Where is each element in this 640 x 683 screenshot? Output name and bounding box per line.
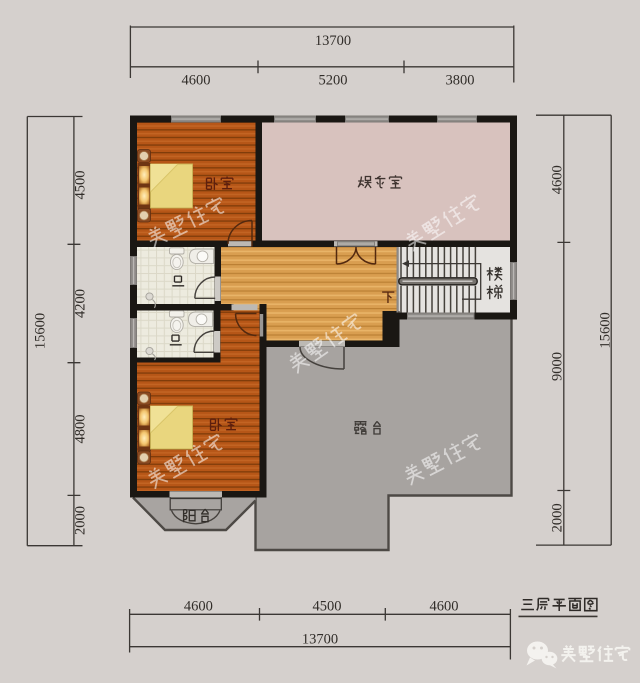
svg-text:4600: 4600 — [182, 73, 211, 89]
svg-text:4800: 4800 — [73, 415, 89, 444]
svg-text:2000: 2000 — [550, 503, 566, 532]
svg-text:4600: 4600 — [430, 599, 459, 615]
svg-text:4200: 4200 — [73, 289, 89, 318]
svg-text:13700: 13700 — [315, 33, 351, 49]
svg-text:4600: 4600 — [184, 599, 213, 615]
svg-text:15600: 15600 — [598, 312, 614, 348]
svg-text:5200: 5200 — [319, 73, 348, 89]
svg-text:4600: 4600 — [550, 165, 566, 194]
svg-text:13700: 13700 — [302, 632, 338, 648]
svg-text:9000: 9000 — [550, 352, 566, 381]
svg-text:15600: 15600 — [33, 313, 49, 349]
svg-text:4500: 4500 — [73, 171, 89, 200]
svg-text:4500: 4500 — [313, 599, 342, 615]
svg-text:3800: 3800 — [446, 73, 475, 89]
svg-text:2000: 2000 — [73, 506, 89, 535]
